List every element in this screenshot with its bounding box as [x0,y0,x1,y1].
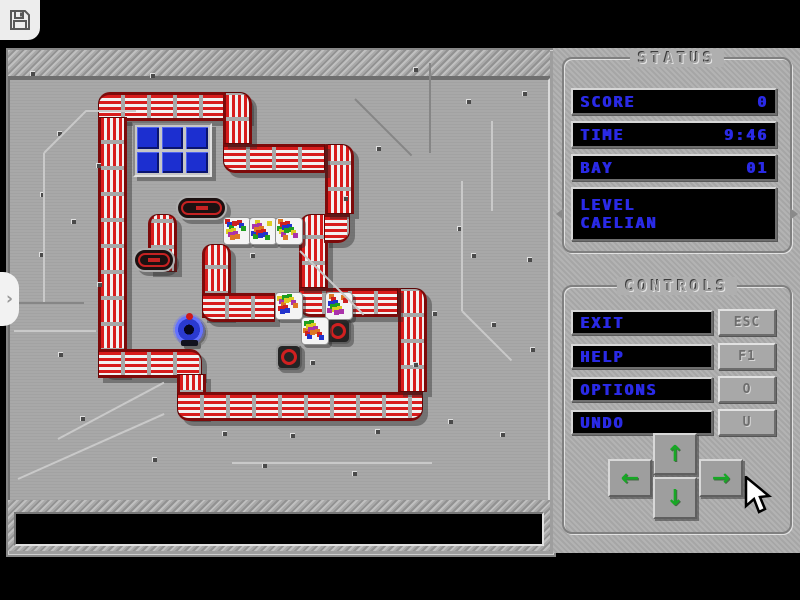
help-button[interactable]: HELP [571,344,713,369]
options-button[interactable]: OPTIONS [571,377,713,402]
top-bar [0,0,800,48]
help-label: HELP [580,348,624,366]
dpad-down-button[interactable]: ↓ [653,477,697,519]
time-label: TIME [580,126,624,144]
esc-key-label: ESC [734,315,760,330]
metal-strip-top [8,50,550,78]
exit-label: EXIT [580,314,624,332]
playfield[interactable] [8,78,550,502]
message-bar [14,512,544,546]
drawer-tab[interactable]: › [0,272,19,326]
chevron-right-icon: › [6,289,13,309]
undo-button[interactable]: UNDO [571,410,713,435]
score-display: SCORE 0 [571,88,777,115]
f1-key-badge: F1 [718,343,776,370]
bay-label: BAY [580,159,613,177]
level-notch-right-icon [790,208,798,220]
save-button[interactable] [0,0,40,40]
bay-value: 01 [746,159,768,177]
floppy-disk-icon [9,9,31,31]
status-panel: STATUS SCORE 0 TIME 9:46 BAY 01 LEVEL CA… [562,57,792,253]
time-display: TIME 9:46 [571,121,777,148]
dpad-left-button[interactable]: ← [608,459,652,497]
bay-display: BAY 01 [571,154,777,181]
status-title: STATUS [630,49,724,67]
u-key-label: U [743,415,752,430]
time-value: 9:46 [724,126,768,144]
o-key-badge: O [718,376,776,403]
controls-title: CONTROLS [617,277,737,295]
arrow-up-icon: ↑ [666,442,684,467]
f1-key-label: F1 [738,349,756,364]
score-value: 0 [757,93,768,111]
undo-label: UNDO [580,414,624,432]
score-label: SCORE [580,93,635,111]
arrow-right-icon: → [712,466,730,491]
level-name: CAELIAN [580,214,657,232]
o-key-label: O [743,382,752,397]
arrow-down-icon: ↓ [666,486,684,511]
mouse-cursor [744,476,774,518]
arrow-left-icon: ← [621,466,639,491]
level-display: LEVEL CAELIAN [571,187,777,241]
dpad-right-button[interactable]: → [699,459,743,497]
level-notch-left-icon [556,208,564,220]
game-board-frame [6,48,556,557]
dpad-up-button[interactable]: ↑ [653,433,697,475]
esc-key-badge: ESC [718,309,776,336]
options-label: OPTIONS [580,381,657,399]
exit-button[interactable]: EXIT [571,310,713,335]
u-key-badge: U [718,409,776,436]
level-label: LEVEL [580,196,635,214]
